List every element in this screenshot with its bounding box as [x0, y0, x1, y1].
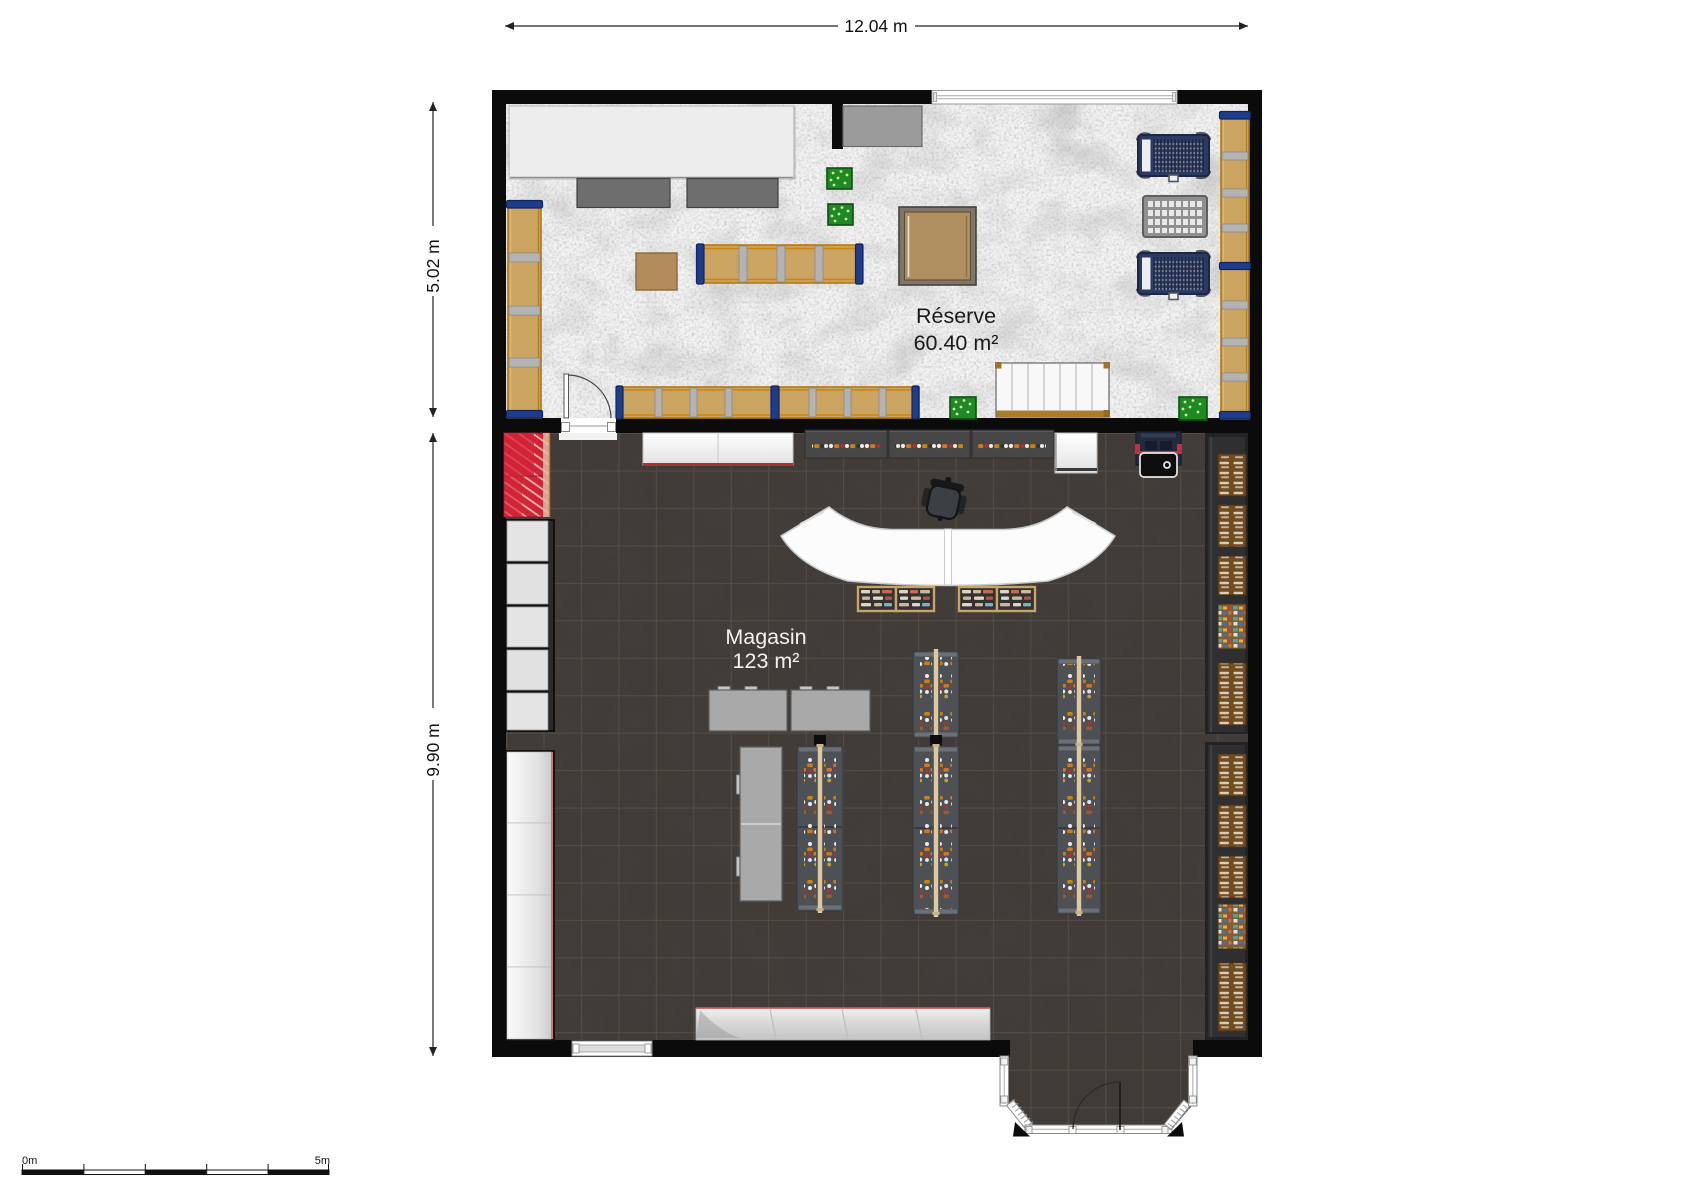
svg-text:12.04 m: 12.04 m [844, 16, 907, 36]
svg-text:5m: 5m [315, 1155, 330, 1167]
svg-text:Réserve: Réserve [916, 304, 996, 328]
svg-text:123 m²: 123 m² [733, 649, 800, 673]
svg-text:60.40 m²: 60.40 m² [914, 331, 999, 355]
svg-text:5.02 m: 5.02 m [423, 239, 443, 293]
svg-text:0m: 0m [22, 1155, 37, 1167]
svg-text:Magasin: Magasin [725, 625, 806, 649]
svg-text:9.90 m: 9.90 m [423, 723, 443, 777]
